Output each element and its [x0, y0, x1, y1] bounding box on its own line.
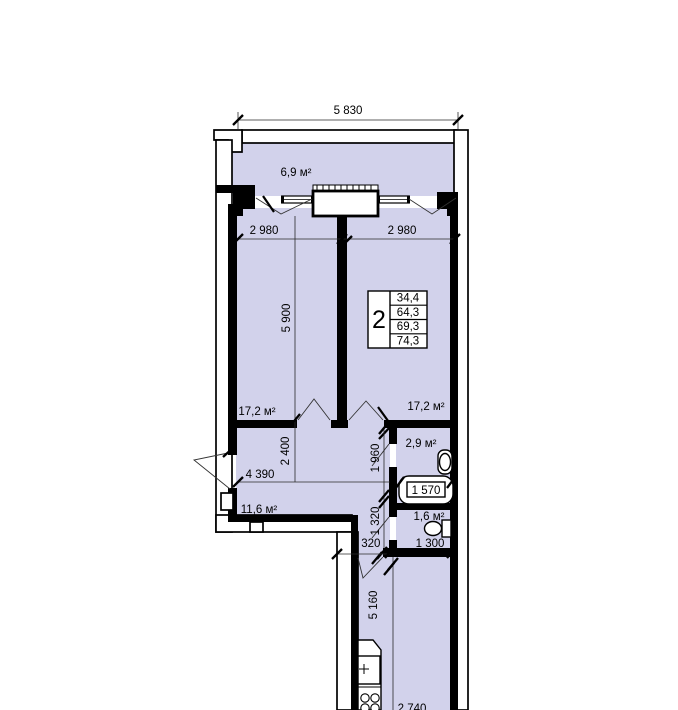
- kitchen-sink: [358, 656, 380, 684]
- wall-rooms-bottom-b: [331, 420, 348, 428]
- label-room-left: 17,2 м²: [238, 406, 275, 418]
- wall-rooms-bottom-a: [228, 420, 297, 428]
- table-area-1: 34,4: [397, 293, 420, 305]
- dim-lobby-width: 1 320: [352, 538, 381, 550]
- entry-niche: [221, 493, 233, 510]
- label-wc: 1,6 м²: [414, 511, 445, 523]
- label-balcony: 6,9 м²: [281, 167, 312, 179]
- dim-bathtub: 1 570: [412, 485, 441, 497]
- table-area-2: 64,3: [397, 307, 419, 319]
- kitchen-counter: [358, 640, 381, 710]
- wall-rooms-bottom-c: [384, 420, 458, 428]
- floor-plan: 5 830 2 980 2 980 5 900 2 400 4 390 1 96…: [0, 0, 678, 710]
- label-bathroom: 2,9 м²: [406, 438, 437, 450]
- wall-bump: [250, 522, 263, 532]
- wall-hall-bottom-inner: [228, 515, 354, 522]
- dim-hall-depth: 2 400: [280, 437, 292, 466]
- dim-room-left-width: 2 980: [250, 225, 279, 237]
- table-area-4: 74,3: [397, 336, 419, 348]
- wall-top: [242, 130, 458, 143]
- label-room-right: 17,2 м²: [407, 401, 444, 413]
- dim-bath-depth: 1 960: [370, 444, 382, 473]
- dim-lobby-depth: 1 320: [370, 507, 382, 536]
- dim-hall-width: 4 390: [246, 469, 275, 481]
- table-area-3: 69,3: [397, 321, 419, 333]
- unit-info-table: 2 34,4 64,3 69,3 74,3: [368, 291, 427, 348]
- hall-fill: [236, 422, 390, 557]
- dim-rooms-depth: 5 900: [281, 304, 293, 333]
- dim-kitchen-depth: 5 160: [368, 591, 380, 620]
- wall-bath-left-a: [389, 428, 397, 444]
- dim-room-right-width: 2 980: [388, 225, 417, 237]
- label-hall: 11,6 м²: [241, 504, 278, 516]
- bath-sink: [438, 450, 452, 474]
- table-rooms-count: 2: [372, 306, 386, 334]
- window-center-bay: [313, 185, 378, 216]
- wall-right-inner-b: [450, 557, 458, 710]
- dim-kitchen-width: 2 740: [398, 703, 427, 710]
- dim-total-width: 5 830: [334, 105, 363, 117]
- dim-wc-width: 1 300: [416, 538, 445, 550]
- wall-wc-left-a: [389, 510, 397, 517]
- floor-plan-page: 5 830 2 980 2 980 5 900 2 400 4 390 1 96…: [0, 0, 678, 710]
- pier-left-cap: [216, 185, 255, 193]
